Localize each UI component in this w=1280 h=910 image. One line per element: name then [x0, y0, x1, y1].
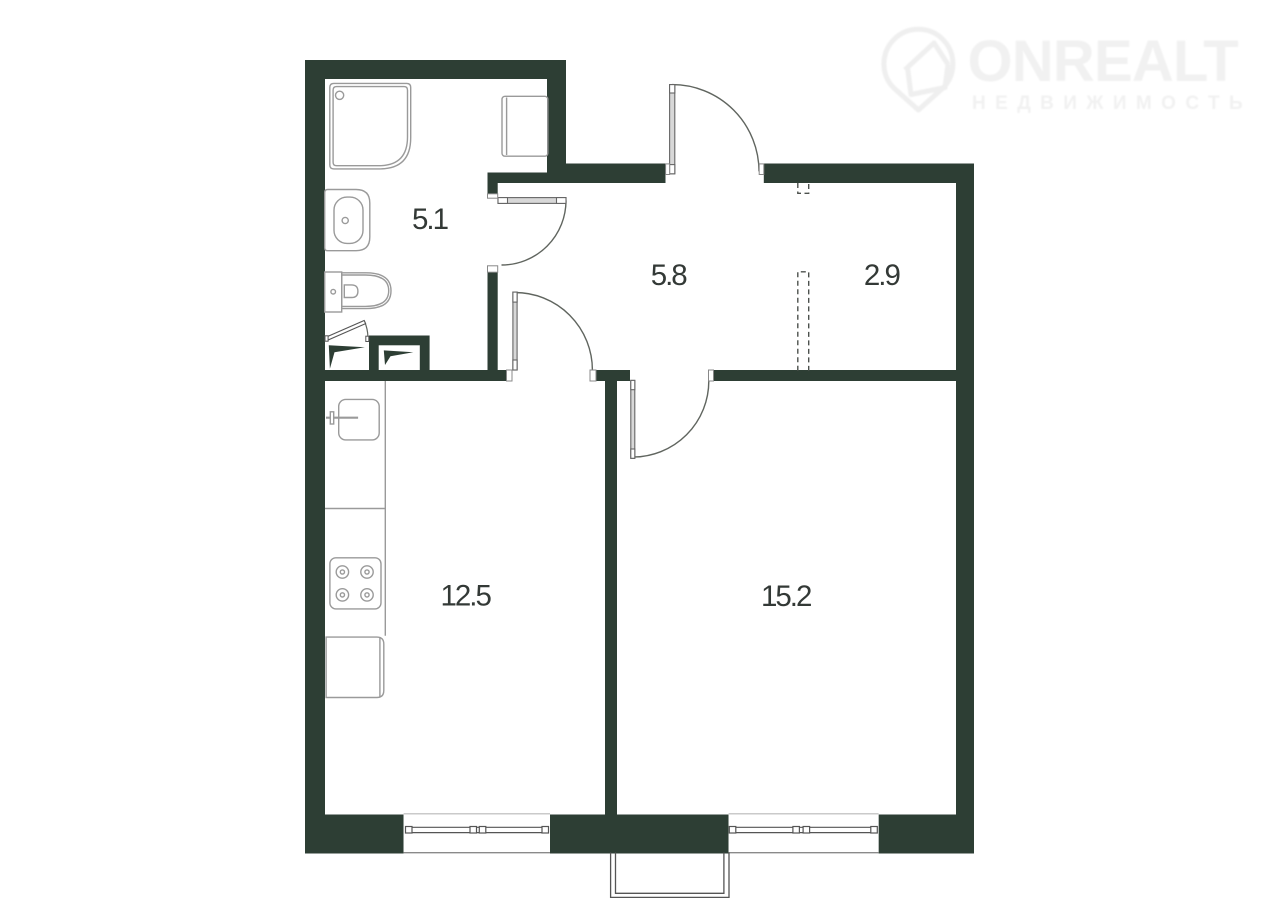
svg-text:2.9: 2.9 [864, 259, 901, 292]
svg-text:15.2: 15.2 [761, 580, 811, 613]
svg-text:5.8: 5.8 [651, 259, 688, 292]
svg-text:ONREALT: ONREALT [968, 29, 1239, 94]
svg-text:5.1: 5.1 [412, 203, 448, 236]
svg-text:12.5: 12.5 [440, 580, 491, 613]
svg-text:НЕДВИЖИМОСТЬ: НЕДВИЖИМОСТЬ [972, 93, 1252, 114]
